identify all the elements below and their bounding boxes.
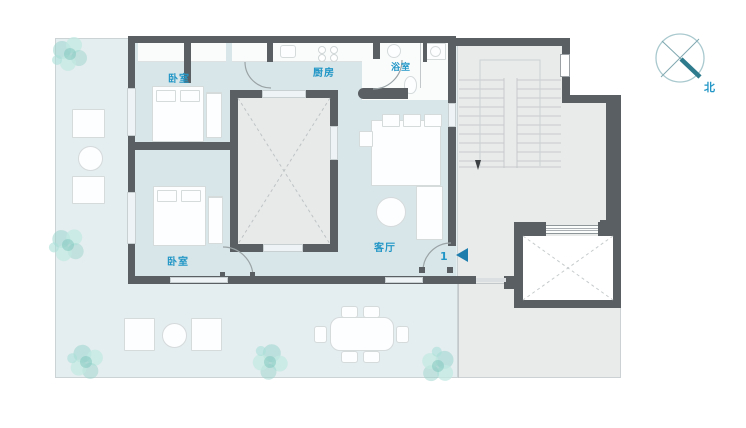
compass-icon — [656, 34, 704, 82]
pillow — [157, 190, 177, 202]
landing-line-v — [458, 283, 459, 378]
patio-table — [78, 146, 103, 171]
pillow — [180, 90, 200, 102]
floor-plan-canvas: 卧室 厨房 浴室 卧室 客厅 1 北 — [0, 0, 746, 428]
coffee-table — [376, 197, 406, 227]
wall-outer-right — [606, 95, 621, 228]
dining-chair — [341, 306, 358, 318]
kitchen-counter — [232, 42, 362, 62]
elevator-cab — [523, 236, 613, 300]
central-shaft — [230, 90, 338, 252]
side-table — [359, 131, 373, 147]
label-living-room: 客厅 — [374, 239, 396, 254]
dining-chair — [363, 351, 380, 363]
entry-threshold — [476, 278, 506, 282]
window-right — [448, 103, 456, 127]
label-bedroom-bottom: 卧室 — [167, 253, 189, 268]
sofa-cushion — [382, 114, 400, 127]
dining-chair — [396, 326, 409, 343]
shaft-window-right — [330, 126, 338, 160]
sofa-chaise — [416, 186, 443, 240]
common-area-upper — [458, 38, 570, 98]
dresser-bottom — [208, 196, 223, 244]
window-bottom-2 — [385, 277, 423, 283]
patio-chair — [72, 176, 105, 204]
elevator-corner-tl — [514, 222, 546, 236]
sofa-main — [371, 120, 441, 186]
bathroom-sink — [387, 44, 401, 58]
patio-chair — [72, 109, 105, 138]
label-kitchen: 厨房 — [313, 64, 335, 79]
wall-bathroom-elbow — [358, 88, 408, 99]
entrance-arrow-icon — [456, 248, 468, 262]
patio-chair — [191, 318, 222, 351]
label-bedroom-top: 卧室 — [168, 70, 190, 85]
dining-chair — [314, 326, 327, 343]
shaft-window-bottom — [263, 244, 303, 252]
elevator-wall-right — [613, 222, 621, 308]
stair-door — [560, 54, 570, 77]
kitchen-sink — [280, 45, 296, 58]
sofa-cushion — [403, 114, 421, 127]
wall-right — [448, 36, 456, 246]
shaft-window-top — [262, 90, 306, 98]
dining-table — [330, 317, 394, 351]
bathroom-divider — [420, 42, 421, 88]
elevator-door — [546, 225, 598, 234]
elevator-wall-bottom — [514, 300, 621, 308]
pillow — [181, 190, 201, 202]
dining-chair — [341, 351, 358, 363]
patio-table — [162, 323, 187, 348]
wall-stub-c — [373, 36, 380, 59]
window-bottom-1 — [170, 277, 228, 283]
pillow — [156, 90, 176, 102]
wall-stub-d — [423, 36, 427, 62]
wall-left — [128, 36, 135, 283]
wall-bedroom-divider — [128, 142, 232, 150]
label-entrance-number: 1 — [440, 250, 448, 263]
patio-chair — [124, 318, 155, 351]
sofa-cushion — [424, 114, 442, 127]
dresser-top — [206, 92, 222, 138]
window-left-2 — [127, 192, 136, 244]
window-left-1 — [127, 88, 136, 136]
wall-stair-top — [450, 38, 570, 46]
washer-drum — [430, 46, 441, 57]
label-north: 北 — [704, 79, 715, 95]
wall-stub-b — [267, 36, 273, 62]
closet-band — [138, 42, 226, 62]
wall-top — [128, 36, 456, 43]
label-bathroom: 浴室 — [391, 60, 411, 73]
dining-chair — [363, 306, 380, 318]
